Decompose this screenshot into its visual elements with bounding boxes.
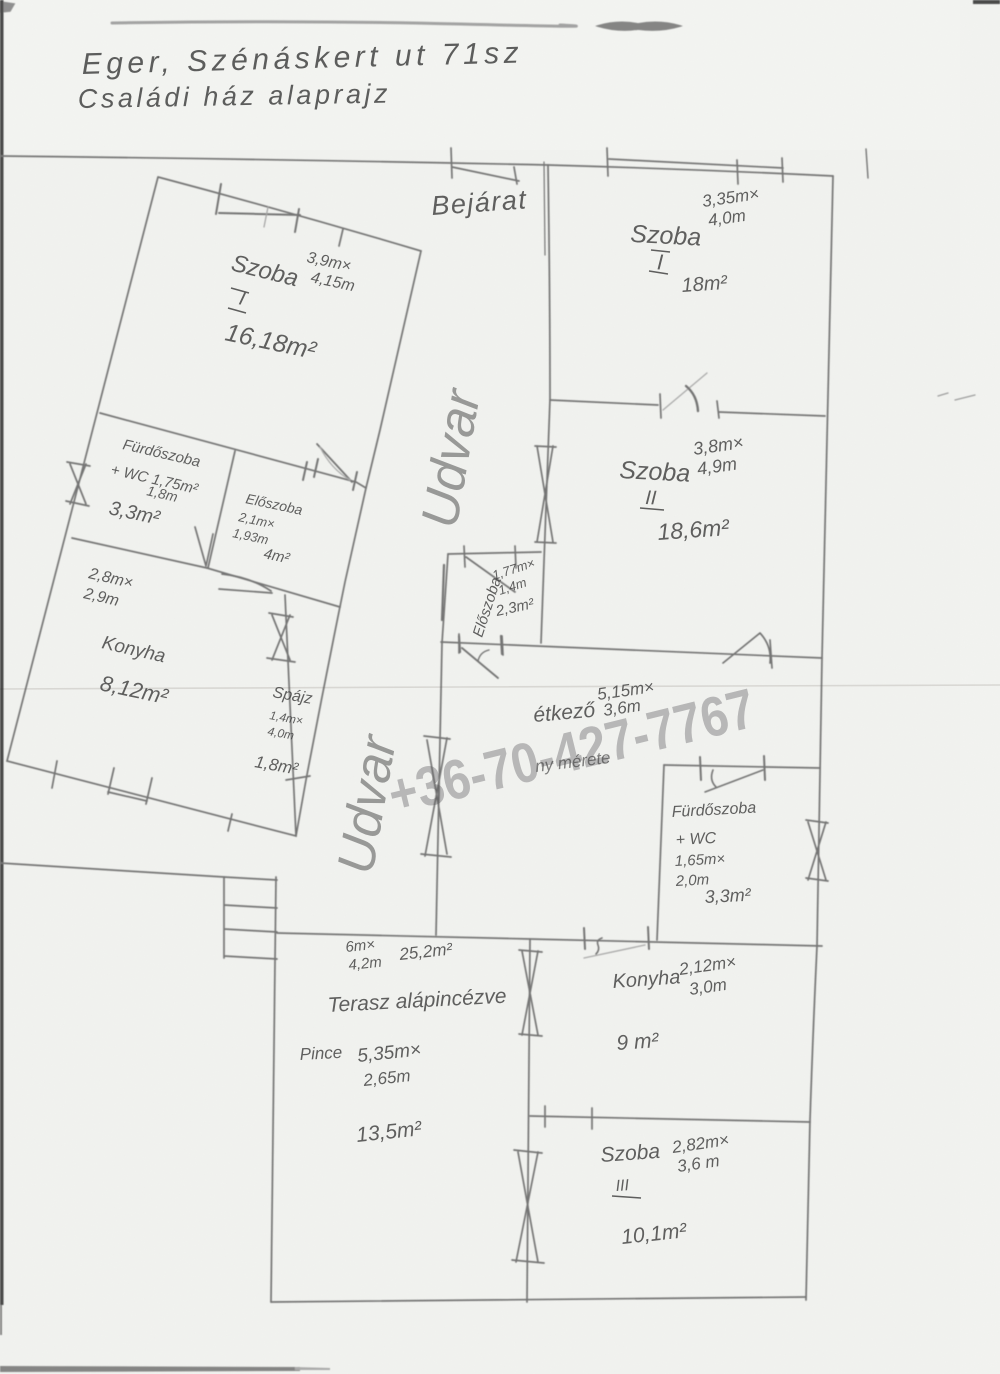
svg-text:6m×: 6m× xyxy=(345,936,376,956)
svg-text:Szoba: Szoba xyxy=(630,220,702,252)
svg-text:Szoba: Szoba xyxy=(600,1140,661,1167)
svg-text:1,65m×: 1,65m× xyxy=(674,850,725,870)
svg-text:4,2m: 4,2m xyxy=(348,954,383,974)
svg-text:II: II xyxy=(645,487,658,510)
svg-text:18m²: 18m² xyxy=(681,272,729,297)
svg-text:18,6m²: 18,6m² xyxy=(657,514,732,545)
svg-text:+ WC: + WC xyxy=(675,830,717,849)
svg-text:I: I xyxy=(656,249,663,274)
svg-text:Pince: Pince xyxy=(299,1043,342,1064)
svg-text:Szoba: Szoba xyxy=(619,456,691,488)
svg-text:3,3m²: 3,3m² xyxy=(704,885,752,907)
svg-text:9 m²: 9 m² xyxy=(616,1029,661,1055)
svg-text:III: III xyxy=(615,1177,630,1195)
svg-text:Családi ház alaprajz: Családi ház alaprajz xyxy=(78,79,392,114)
